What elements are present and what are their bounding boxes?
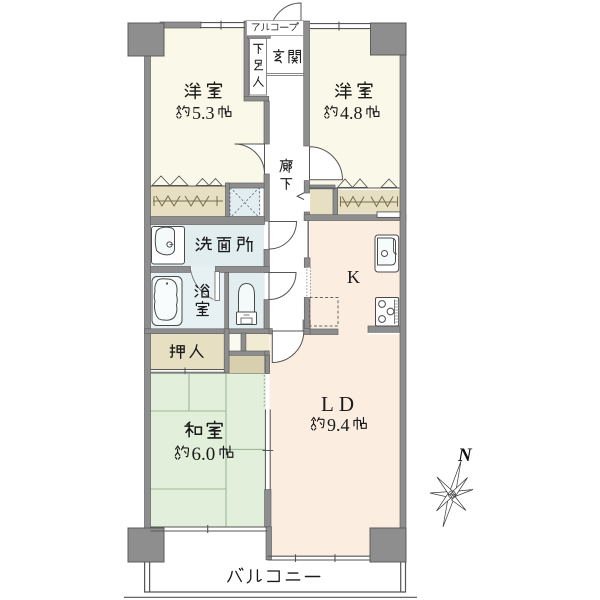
svg-text:5.3: 5.3 [192, 103, 215, 123]
svg-text:N: N [457, 445, 473, 466]
svg-text:K: K [347, 267, 360, 287]
svg-text:LD: LD [321, 392, 359, 416]
svg-text:9.4: 9.4 [327, 415, 350, 435]
svg-text:4.8: 4.8 [340, 103, 363, 123]
svg-text:6.0: 6.0 [192, 444, 216, 465]
